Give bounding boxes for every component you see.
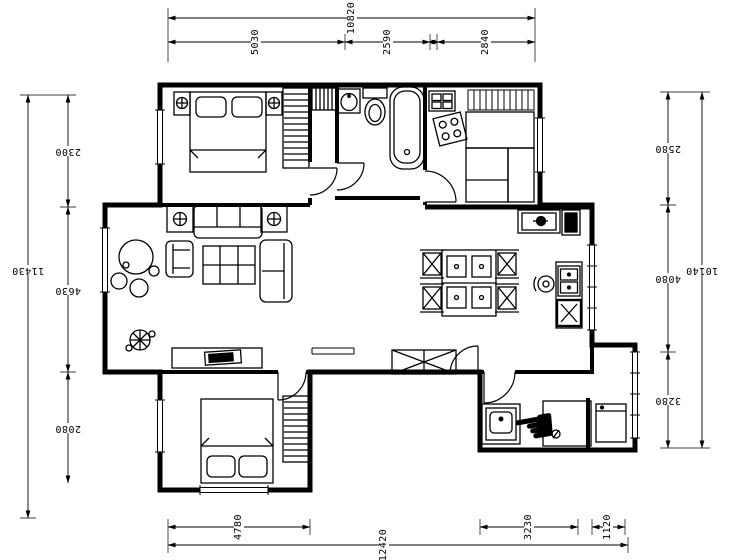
window-bedroom2-bottom	[200, 485, 268, 495]
water-heater-icon	[557, 300, 581, 326]
window-bedroom1-left	[155, 110, 165, 164]
dim-right-overall: 10140	[685, 265, 720, 275]
dim-bottom-seg-3: 1120	[603, 513, 613, 541]
armchair-icon	[166, 241, 193, 277]
kitchen-cabinets	[466, 112, 534, 202]
dim-top-seg-2: 2590	[383, 28, 393, 56]
prep-sink-icon	[556, 262, 582, 328]
dining-chair-icon	[420, 250, 444, 278]
floor-plan-canvas: ☚	[0, 0, 740, 560]
dining-chair-icon	[495, 250, 519, 278]
windows	[100, 90, 640, 495]
hall-shelf-icon	[312, 88, 336, 110]
svg-text:☚: ☚	[508, 395, 562, 460]
dim-left-overall: 11430	[11, 265, 46, 275]
washing-machine-icon	[596, 404, 626, 442]
bathtub-icon	[390, 87, 424, 169]
dim-right-seg-3: 3280	[654, 395, 682, 405]
floor-plan-page: ☚ 10820 5030 2590 2840 11430 2300 4630 2…	[0, 0, 740, 560]
tall-cabinet-icon	[562, 210, 580, 235]
counter-sink-icon	[518, 210, 560, 233]
dim-left-seg-3: 2080	[54, 423, 82, 433]
dim-bottom-seg-1: 4780	[234, 513, 244, 541]
window-balcony-right	[630, 352, 640, 438]
side-table-icon	[167, 206, 193, 232]
dim-top-seg-3: 2840	[481, 28, 491, 56]
dim-right-seg-1: 2580	[654, 143, 682, 153]
side-table-icon	[261, 206, 287, 232]
hand-cursor-icon: ☚	[508, 395, 562, 460]
window-kitchen-top	[468, 90, 534, 110]
coffee-table-icon	[203, 246, 255, 284]
dim-top-seg-1: 5030	[251, 28, 261, 56]
kitchen-sink-icon	[429, 91, 455, 111]
dim-left-seg-1: 2300	[54, 146, 82, 156]
dim-left-seg-2: 4630	[54, 285, 82, 295]
interior-walls	[160, 85, 592, 450]
dimension-lines	[20, 8, 710, 553]
rug-icon	[111, 240, 159, 297]
window-living-left	[100, 228, 110, 292]
dining-table-icon	[442, 250, 496, 316]
stove-hob-icon	[433, 112, 467, 146]
nightstand-icon	[266, 92, 282, 115]
wardrobe-icon	[283, 88, 309, 168]
stool-icon	[534, 276, 554, 292]
sofa-icon	[194, 205, 262, 238]
double-bed-icon	[201, 399, 273, 483]
dining-chair-icon	[495, 284, 519, 312]
toilet-icon	[363, 88, 387, 125]
dim-right-seg-2: 4080	[654, 273, 682, 283]
dim-bottom-seg-2: 3230	[524, 513, 534, 541]
dining-chair-icon	[420, 284, 444, 312]
tv-cabinet-icon	[172, 348, 262, 368]
shoe-cabinet-icon	[392, 350, 456, 374]
washbasin-icon	[338, 89, 360, 113]
loveseat-icon	[260, 240, 292, 302]
window-kitchen-right	[535, 118, 545, 172]
wardrobe-icon	[283, 396, 309, 462]
plant-icon	[126, 330, 155, 351]
dim-top-overall: 10820	[347, 1, 357, 36]
nightstand-icon	[174, 92, 190, 115]
double-bed-icon	[190, 92, 266, 172]
dim-bottom-overall: 12420	[379, 528, 389, 560]
window-bedroom2-left	[155, 400, 165, 452]
window-dining-right	[587, 245, 597, 330]
